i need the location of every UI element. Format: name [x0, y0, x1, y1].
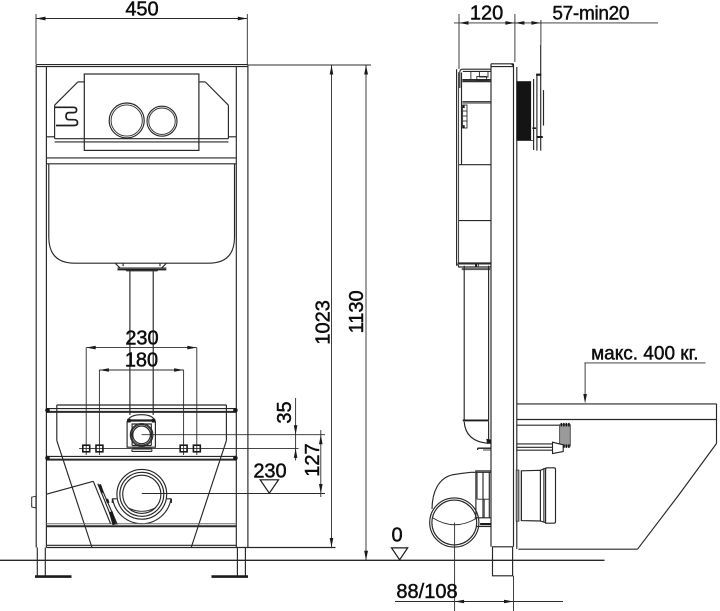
- svg-text:127: 127: [302, 443, 324, 476]
- svg-text:1023: 1023: [312, 300, 334, 345]
- svg-text:230: 230: [125, 328, 158, 350]
- svg-text:1130: 1130: [346, 290, 368, 333]
- svg-text:88/108: 88/108: [396, 581, 457, 603]
- svg-text:450: 450: [125, 0, 158, 21]
- svg-text:макс. 400 кг.: макс. 400 кг.: [591, 344, 698, 365]
- svg-text:180: 180: [125, 350, 158, 372]
- svg-text:0: 0: [391, 525, 402, 547]
- svg-text:35: 35: [274, 401, 296, 423]
- svg-text:57-min20: 57-min20: [552, 4, 629, 25]
- svg-text:120: 120: [470, 3, 503, 25]
